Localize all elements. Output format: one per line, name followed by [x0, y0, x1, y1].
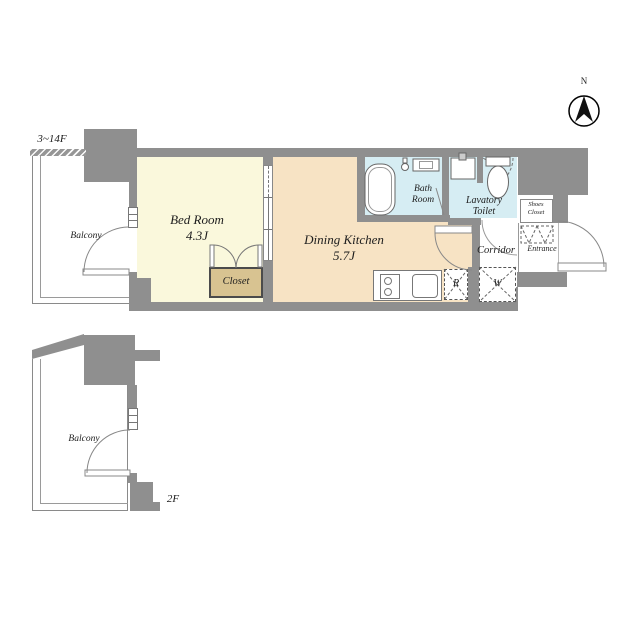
bedroom-balcony-window: [128, 207, 138, 228]
closet-label: Closet: [206, 276, 266, 287]
dining-kitchen-name-label: Dining Kitchen: [284, 233, 404, 247]
compass-north-label: N: [574, 77, 594, 86]
wall-bath-left: [357, 157, 365, 222]
wall-corridor-left: [472, 218, 480, 267]
wall-2f-block: [84, 335, 135, 385]
wall-entrance-bottom: [517, 272, 567, 287]
balcony-main-label: Balcony: [56, 232, 116, 242]
entrance-label: Entrance: [512, 245, 572, 253]
sliding-door-panel-divider: [264, 197, 272, 198]
wall-left-upper: [129, 157, 137, 207]
refrigerator-label: R: [444, 279, 468, 290]
balcony-partition-hatch: [30, 149, 86, 156]
wall-bottom: [129, 302, 518, 311]
stove-burner: [384, 288, 392, 296]
wall-2f-right-upper: [128, 385, 137, 408]
kitchen-counter: [373, 270, 442, 301]
unit-floors-label: 3~14F: [30, 134, 74, 146]
balcony-2f-label: Balcony: [54, 435, 114, 445]
lower-plan-label: 2F: [158, 494, 188, 506]
floor-plan: 3~14F Balcony Bed Room 4.3J Dining Kitch…: [0, 0, 640, 640]
wall-2f-bottom-bar: [130, 502, 160, 511]
wall-top-right-block: [518, 157, 588, 195]
entrance-right-line: [558, 223, 559, 264]
shoes-closet-bifold-marks: [521, 226, 553, 243]
wall-lavatory-stub: [477, 157, 483, 183]
north-arrow-icon: [575, 96, 593, 122]
wall-2f-tab: [135, 350, 160, 361]
washing-machine-label: W: [479, 279, 516, 290]
balcony-2f-sloped-parapet: [32, 334, 84, 359]
wall-2f-step: [130, 482, 153, 503]
balcony-2f-window: [128, 408, 138, 430]
sliding-door-track-dashed: [268, 166, 269, 197]
lavatory-label-line1: Lavatory: [454, 196, 514, 207]
shoes-closet-label-line1: Shoes: [516, 202, 556, 209]
kitchen-sink: [412, 274, 438, 298]
plan-vector-overlay: [0, 0, 640, 640]
bedroom-size-label: 4.3J: [147, 229, 247, 243]
bathroom-label-line2: Room: [398, 196, 448, 206]
bathroom-label-line1: Bath: [398, 185, 448, 195]
shoes-closet-label-line2: Closet: [516, 210, 556, 217]
wall-r-w-divider: [468, 267, 479, 302]
lavatory-label-line2: Toilet: [454, 207, 514, 218]
compass-icon: [569, 96, 599, 126]
wall-top: [129, 148, 588, 157]
stove-burner: [384, 277, 392, 285]
sliding-door-partition: [263, 165, 273, 261]
bedroom-name-label: Bed Room: [147, 213, 247, 227]
wall-partition-top: [263, 157, 273, 165]
wall-entrance-column: [553, 195, 568, 223]
dining-kitchen-size-label: 5.7J: [284, 249, 404, 263]
wall-bath-bottom: [357, 215, 450, 222]
sliding-door-panel-divider: [264, 229, 272, 230]
